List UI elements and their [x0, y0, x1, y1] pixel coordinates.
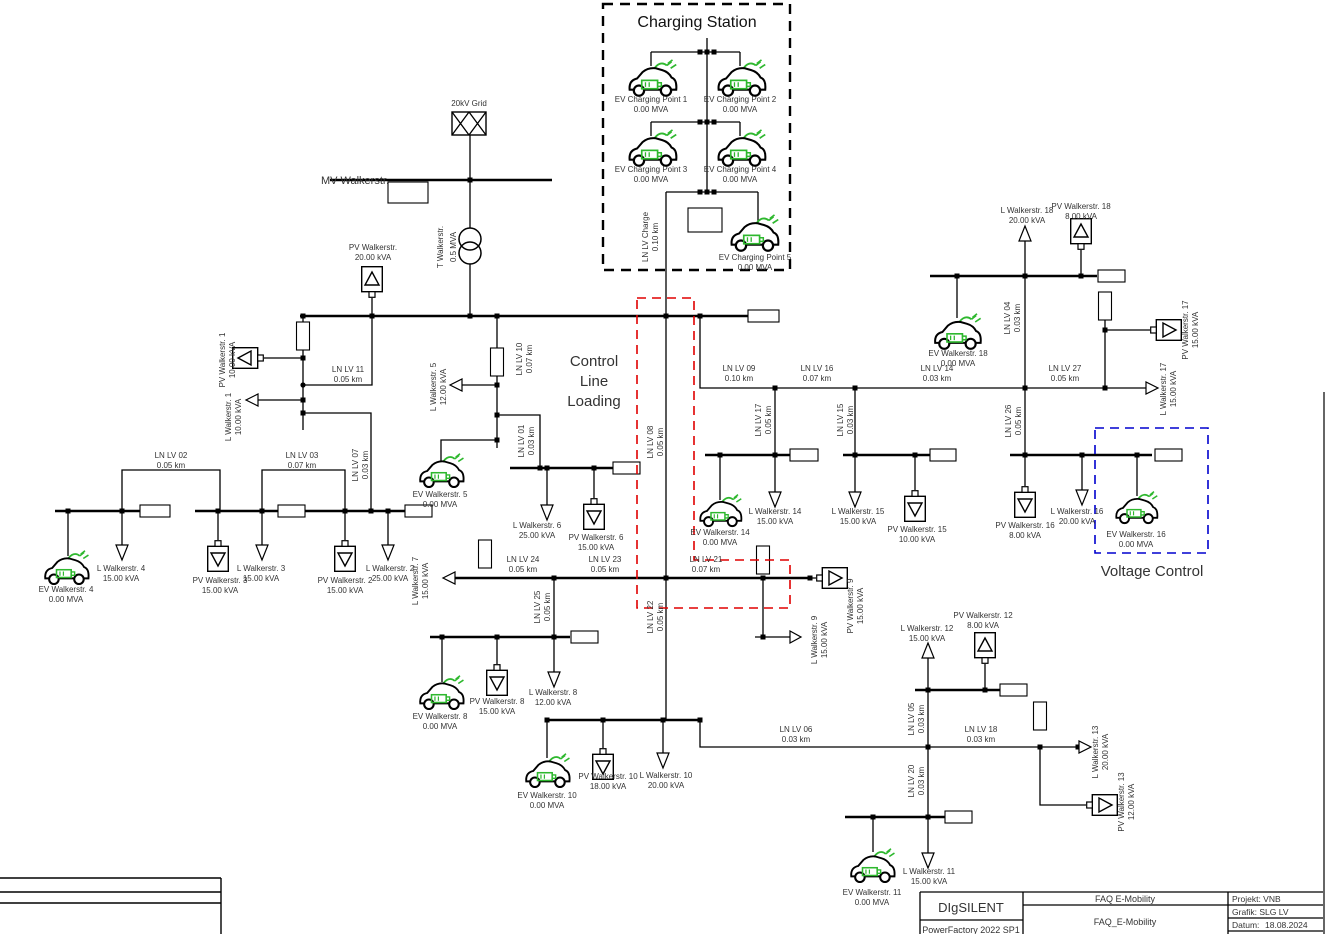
pv-icon[interactable]	[1071, 219, 1092, 250]
svg-text:LN LV 03: LN LV 03	[286, 451, 319, 460]
svg-text:LN LV 08: LN LV 08	[646, 425, 655, 458]
svg-text:0.05 km: 0.05 km	[656, 427, 665, 456]
svg-text:0.00 MVA: 0.00 MVA	[738, 263, 773, 272]
svg-text:0.10 km: 0.10 km	[651, 222, 660, 251]
svg-text:LN LV 11: LN LV 11	[332, 365, 365, 374]
ev-car-icon[interactable]	[719, 130, 766, 166]
svg-text:L Walkerstr. 6: L Walkerstr. 6	[513, 521, 562, 530]
vendor-logo-text: DIgSILENT	[938, 900, 1004, 915]
svg-text:15.00 kVA: 15.00 kVA	[578, 543, 615, 552]
pv-icon[interactable]	[584, 499, 605, 530]
svg-text:0.00 MVA: 0.00 MVA	[49, 595, 84, 604]
svg-text:EV Charging Point 5: EV Charging Point 5	[719, 253, 792, 262]
ev-car-icon[interactable]	[935, 314, 981, 349]
svg-text:0.00 MVA: 0.00 MVA	[634, 105, 669, 114]
svg-text:8.00 kVA: 8.00 kVA	[967, 621, 1000, 630]
pv-icon[interactable]	[487, 665, 508, 696]
svg-text:L Walkerstr. 9: L Walkerstr. 9	[810, 615, 819, 664]
date-field-label: Datum:	[1232, 920, 1259, 930]
svg-text:10.00 kVA: 10.00 kVA	[234, 398, 243, 435]
svg-text:0.05 km: 0.05 km	[1014, 406, 1023, 435]
svg-text:L Walkerstr. 3: L Walkerstr. 3	[237, 564, 286, 573]
ev-car-icon[interactable]	[420, 454, 463, 487]
svg-text:20.00 kVA: 20.00 kVA	[355, 253, 392, 262]
svg-text:L Walkerstr. 7: L Walkerstr. 7	[411, 556, 420, 605]
svg-text:15.00 kVA: 15.00 kVA	[856, 587, 865, 624]
control-annotation: Control	[570, 353, 618, 370]
svg-text:EV Walkerstr. 14: EV Walkerstr. 14	[690, 528, 750, 537]
svg-text:0.00 MVA: 0.00 MVA	[634, 175, 669, 184]
svg-text:PV Walkerstr. 15: PV Walkerstr. 15	[887, 525, 947, 534]
svg-text:12.00 kVA: 12.00 kVA	[439, 368, 448, 405]
svg-text:EV Charging Point 1: EV Charging Point 1	[615, 95, 688, 104]
svg-text:EV Walkerstr. 18: EV Walkerstr. 18	[928, 349, 988, 358]
transformer-symbol[interactable]	[459, 228, 481, 264]
control-annotation: Line	[580, 373, 608, 390]
svg-text:PV Walkerstr.: PV Walkerstr.	[349, 243, 397, 252]
svg-text:LN LV 05: LN LV 05	[907, 702, 916, 735]
pv-icon[interactable]	[208, 541, 229, 572]
svg-text:L Walkerstr. 17: L Walkerstr. 17	[1159, 362, 1168, 415]
page-frame	[0, 392, 1324, 934]
svg-text:10.00 kVA: 10.00 kVA	[899, 535, 936, 544]
svg-text:LN LV 26: LN LV 26	[1004, 404, 1013, 437]
project-title: FAQ E-Mobility	[1095, 894, 1156, 904]
svg-text:L Walkerstr. 13: L Walkerstr. 13	[1091, 725, 1100, 778]
svg-text:PV Walkerstr. 16: PV Walkerstr. 16	[995, 521, 1055, 530]
project-field: Projekt: VNB	[1232, 894, 1281, 904]
svg-text:15.00 kVA: 15.00 kVA	[243, 574, 280, 583]
diagram-page: Charging Station Control Line Loading Vo…	[0, 0, 1332, 934]
control-annotation: Loading	[567, 393, 620, 410]
svg-text:L Walkerstr. 14: L Walkerstr. 14	[749, 507, 802, 516]
svg-text:LN LV 23: LN LV 23	[589, 555, 622, 564]
svg-text:0.03 km: 0.03 km	[782, 735, 811, 744]
voltage-annotation: Voltage Control	[1101, 563, 1204, 580]
svg-text:PV Walkerstr. 1: PV Walkerstr. 1	[218, 332, 227, 387]
svg-text:EV Walkerstr. 4: EV Walkerstr. 4	[39, 585, 94, 594]
svg-text:20.00 kVA: 20.00 kVA	[1101, 733, 1110, 770]
svg-text:20.00 kVA: 20.00 kVA	[648, 781, 685, 790]
svg-text:PV Walkerstr. 17: PV Walkerstr. 17	[1181, 300, 1190, 360]
svg-text:LN LV 09: LN LV 09	[723, 364, 756, 373]
svg-text:0.05 km: 0.05 km	[656, 602, 665, 631]
svg-text:L Walkerstr. 1: L Walkerstr. 1	[224, 392, 233, 441]
svg-text:15.00 kVA: 15.00 kVA	[103, 574, 140, 583]
svg-text:0.00 MVA: 0.00 MVA	[423, 500, 458, 509]
svg-text:0.00 MVA: 0.00 MVA	[703, 538, 738, 547]
labels: Charging Station Control Line Loading Vo…	[39, 14, 1204, 907]
svg-text:L Walkerstr. 16: L Walkerstr. 16	[1051, 507, 1104, 516]
svg-text:PV Walkerstr. 18: PV Walkerstr. 18	[1051, 202, 1111, 211]
ev-car-icon[interactable]	[732, 215, 779, 251]
pv-icon[interactable]	[975, 633, 996, 664]
pv-icon[interactable]	[362, 267, 383, 298]
svg-text:PV Walkerstr. 9: PV Walkerstr. 9	[846, 578, 855, 633]
svg-text:L Walkerstr. 12: L Walkerstr. 12	[901, 624, 954, 633]
svg-text:L Walkerstr. 4: L Walkerstr. 4	[97, 564, 146, 573]
ev-car-icon[interactable]	[719, 60, 766, 96]
svg-text:0.05 km: 0.05 km	[509, 565, 538, 574]
svg-text:L Walkerstr. 18: L Walkerstr. 18	[1001, 206, 1054, 215]
product-version: PowerFactory 2022 SP1	[922, 925, 1020, 934]
date-field-value: 18.08.2024	[1265, 920, 1308, 930]
svg-text:L Walkerstr. 5: L Walkerstr. 5	[429, 362, 438, 411]
pv-icon[interactable]	[1151, 320, 1182, 341]
svg-text:0.07 km: 0.07 km	[525, 344, 534, 373]
svg-text:0.07 km: 0.07 km	[288, 461, 317, 470]
svg-text:0.05 km: 0.05 km	[334, 375, 363, 384]
svg-text:8.00 kVA: 8.00 kVA	[1065, 212, 1098, 221]
svg-text:20.00 kVA: 20.00 kVA	[1009, 216, 1046, 225]
svg-text:PV Walkerstr. 3: PV Walkerstr. 3	[193, 576, 248, 585]
svg-text:15.00 kVA: 15.00 kVA	[820, 621, 829, 658]
svg-text:0.00 MVA: 0.00 MVA	[855, 898, 890, 907]
transformer-label: T Walkerstr.0.5 MVA	[436, 226, 458, 268]
svg-text:PV Walkerstr. 8: PV Walkerstr. 8	[470, 697, 525, 706]
svg-text:EV Charging Point 2: EV Charging Point 2	[704, 95, 777, 104]
svg-text:0.00 MVA: 0.00 MVA	[530, 801, 565, 810]
ev-car-icon[interactable]	[851, 849, 894, 882]
svg-text:EV Walkerstr. 16: EV Walkerstr. 16	[1106, 530, 1166, 539]
svg-text:18.00 kVA: 18.00 kVA	[590, 782, 627, 791]
svg-text:15.00 kVA: 15.00 kVA	[327, 586, 364, 595]
svg-text:15.00 kVA: 15.00 kVA	[911, 877, 948, 886]
pv-icon[interactable]	[1015, 487, 1036, 518]
svg-text:15.00 kVA: 15.00 kVA	[1191, 311, 1200, 348]
svg-text:0.05 km: 0.05 km	[764, 405, 773, 434]
svg-text:L Walkerstr. 10: L Walkerstr. 10	[640, 771, 693, 780]
svg-text:10.00 kVA: 10.00 kVA	[228, 341, 237, 378]
svg-text:0.03 km: 0.03 km	[917, 704, 926, 733]
external-grid-symbol[interactable]	[452, 112, 486, 135]
svg-text:25.00 kVA: 25.00 kVA	[519, 531, 556, 540]
svg-text:LN LV 07: LN LV 07	[351, 448, 360, 481]
svg-text:8.00 kVA: 8.00 kVA	[1009, 531, 1042, 540]
graphic-field: Grafik: SLG LV	[1232, 907, 1289, 917]
svg-text:EV Walkerstr. 5: EV Walkerstr. 5	[413, 490, 468, 499]
charging-station-title: Charging Station	[637, 14, 756, 31]
svg-text:EV Charging Point 4: EV Charging Point 4	[704, 165, 777, 174]
svg-text:0.03 km: 0.03 km	[527, 426, 536, 455]
ev-car-icon[interactable]	[700, 495, 741, 527]
svg-text:0.5 MVA: 0.5 MVA	[449, 231, 458, 262]
svg-text:EV Walkerstr. 11: EV Walkerstr. 11	[843, 888, 902, 897]
svg-text:0.03 km: 0.03 km	[917, 766, 926, 795]
svg-text:L Walkerstr. 15: L Walkerstr. 15	[832, 507, 885, 516]
svg-text:PV Walkerstr. 2: PV Walkerstr. 2	[318, 576, 373, 585]
svg-text:LN LV 10: LN LV 10	[515, 342, 524, 375]
svg-text:LN LV 06: LN LV 06	[780, 725, 813, 734]
svg-text:0.00 MVA: 0.00 MVA	[1119, 540, 1154, 549]
svg-text:0.07 km: 0.07 km	[692, 565, 721, 574]
ev-car-icon[interactable]	[630, 60, 677, 96]
svg-text:PV Walkerstr. 6: PV Walkerstr. 6	[569, 533, 624, 542]
svg-text:15.00 kVA: 15.00 kVA	[840, 517, 877, 526]
svg-text:12.00 kVA: 12.00 kVA	[1127, 783, 1136, 820]
svg-text:L Walkerstr. 11: L Walkerstr. 11	[903, 867, 956, 876]
pv-icon[interactable]	[233, 348, 264, 369]
svg-text:0.05 km: 0.05 km	[543, 592, 552, 621]
ev-car-icon[interactable]	[1116, 492, 1157, 524]
svg-text:T Walkerstr.: T Walkerstr.	[436, 226, 445, 268]
svg-text:20.00 kVA: 20.00 kVA	[1059, 517, 1096, 526]
svg-text:L Walkerstr. 2: L Walkerstr. 2	[366, 564, 415, 573]
pv-icon[interactable]	[905, 491, 926, 522]
svg-text:0.03 km: 0.03 km	[361, 450, 370, 479]
ev-car-icon[interactable]	[526, 754, 569, 787]
svg-text:LN LV 18: LN LV 18	[965, 725, 998, 734]
svg-text:0.00 MVA: 0.00 MVA	[723, 175, 758, 184]
svg-text:LN LV 15: LN LV 15	[836, 403, 845, 436]
svg-text:PV Walkerstr. 12: PV Walkerstr. 12	[953, 611, 1013, 620]
svg-text:15.00 kVA: 15.00 kVA	[1169, 370, 1178, 407]
svg-text:LN LV 04: LN LV 04	[1003, 301, 1012, 334]
svg-text:15.00 kVA: 15.00 kVA	[757, 517, 794, 526]
svg-text:0.03 km: 0.03 km	[967, 735, 996, 744]
svg-text:PV Walkerstr. 10: PV Walkerstr. 10	[578, 772, 638, 781]
svg-text:0.03 km: 0.03 km	[846, 405, 855, 434]
svg-text:LN LV 17: LN LV 17	[754, 403, 763, 436]
graphic-title: FAQ_E-Mobility	[1094, 917, 1157, 927]
pv-icon[interactable]	[1087, 795, 1118, 816]
svg-text:0.03 km: 0.03 km	[923, 374, 952, 383]
svg-text:15.00 kVA: 15.00 kVA	[479, 707, 516, 716]
svg-text:EV Walkerstr. 8: EV Walkerstr. 8	[413, 712, 468, 721]
svg-text:0.10 km: 0.10 km	[725, 374, 754, 383]
svg-text:LN LV Charge: LN LV Charge	[641, 211, 650, 262]
grid-label: 20kV Grid	[451, 99, 487, 108]
title-block: DIgSILENT PowerFactory 2022 SP1 FAQ E-Mo…	[920, 892, 1323, 934]
svg-text:LN LV 21: LN LV 21	[690, 555, 723, 564]
pv-icon[interactable]	[335, 541, 356, 572]
svg-text:12.00 kVA: 12.00 kVA	[535, 698, 572, 707]
svg-text:0.00 MVA: 0.00 MVA	[423, 722, 458, 731]
svg-text:15.00 kVA: 15.00 kVA	[909, 634, 946, 643]
svg-text:LN LV 20: LN LV 20	[907, 764, 916, 797]
pv-icon[interactable]	[817, 568, 848, 589]
mv-bus-label: MV Walkerstr.	[321, 175, 389, 187]
svg-text:0.05 km: 0.05 km	[591, 565, 620, 574]
svg-text:0.00 MVA: 0.00 MVA	[941, 359, 976, 368]
svg-text:LN LV 24: LN LV 24	[507, 555, 540, 564]
svg-text:0.03 km: 0.03 km	[1013, 303, 1022, 332]
svg-text:LN LV 22: LN LV 22	[646, 600, 655, 633]
svg-text:0.00 MVA: 0.00 MVA	[723, 105, 758, 114]
svg-text:PV Walkerstr. 13: PV Walkerstr. 13	[1117, 772, 1126, 832]
svg-text:EV Charging Point 3: EV Charging Point 3	[615, 165, 688, 174]
svg-text:0.05 km: 0.05 km	[157, 461, 186, 470]
svg-text:0.07 km: 0.07 km	[803, 374, 832, 383]
svg-text:LN LV 02: LN LV 02	[155, 451, 188, 460]
svg-text:LN LV 01: LN LV 01	[517, 424, 526, 457]
svg-text:LN LV 25: LN LV 25	[533, 590, 542, 623]
svg-text:L Walkerstr. 8: L Walkerstr. 8	[529, 688, 578, 697]
ev-car-icon[interactable]	[630, 130, 677, 166]
svg-text:EV Walkerstr. 10: EV Walkerstr. 10	[517, 791, 577, 800]
svg-text:LN LV 27: LN LV 27	[1049, 364, 1082, 373]
network-diagram-canvas: Charging Station Control Line Loading Vo…	[0, 0, 1332, 934]
svg-text:15.00 kVA: 15.00 kVA	[202, 586, 239, 595]
svg-text:15.00 kVA: 15.00 kVA	[421, 562, 430, 599]
svg-text:25.00 kVA: 25.00 kVA	[372, 574, 409, 583]
svg-text:LN LV 16: LN LV 16	[801, 364, 834, 373]
ev-car-icon[interactable]	[45, 551, 88, 584]
svg-text:0.05 km: 0.05 km	[1051, 374, 1080, 383]
